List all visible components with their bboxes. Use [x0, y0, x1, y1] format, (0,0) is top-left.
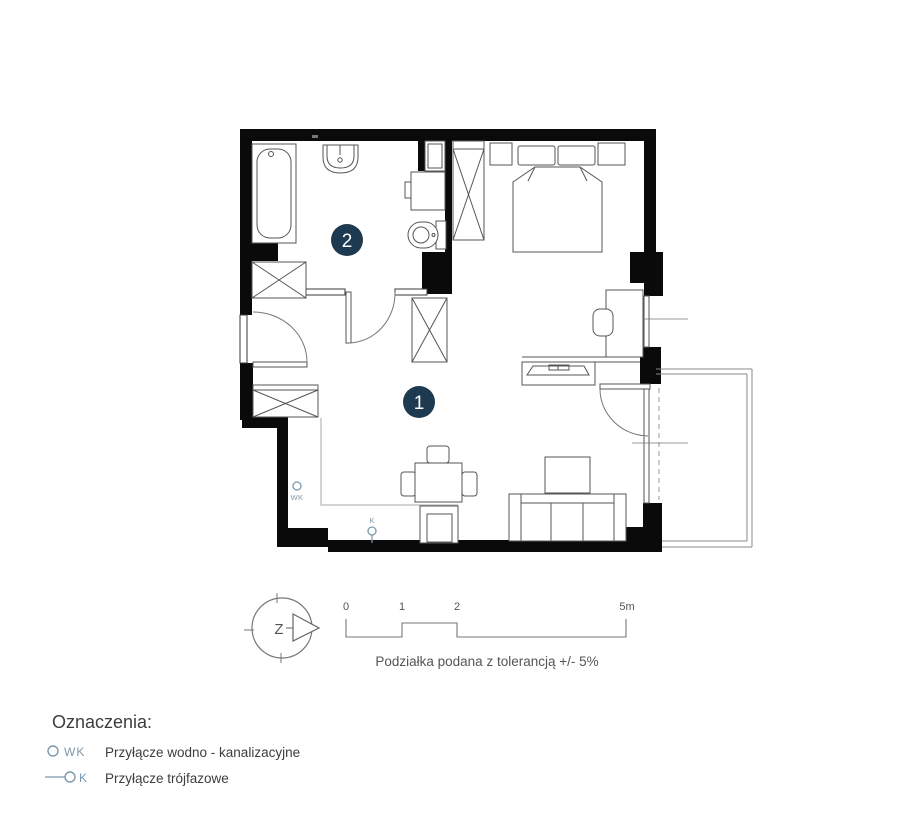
- tv-cabinet: [522, 357, 640, 385]
- legend: Oznaczenia: WK Przyłącze wodno - kanaliz…: [45, 712, 300, 786]
- wk-label: WK: [291, 493, 304, 502]
- wk-circle-icon: [293, 482, 301, 490]
- scale-tick-0: 0: [343, 601, 349, 613]
- bed-duvet: [513, 167, 602, 252]
- legend-k-symbol: K: [79, 771, 87, 785]
- marker-k: K: [368, 516, 376, 543]
- balcony-door-glazing: [644, 386, 649, 503]
- sink: [323, 145, 358, 173]
- coffee-table: [545, 457, 590, 493]
- compass-letter: Z: [274, 621, 283, 638]
- legend-k-circle-icon: [65, 772, 75, 782]
- window-glazing: [644, 296, 649, 347]
- bathtub: [252, 144, 296, 243]
- k-circle-icon: [368, 527, 376, 535]
- sofa: [509, 494, 626, 541]
- legend-wk-label: Przyłącze wodno - kanalizacyjne: [105, 745, 300, 760]
- toilet: [408, 221, 446, 249]
- desk-chair: [593, 309, 613, 336]
- bathroom-door: [346, 292, 395, 343]
- entry-door: [253, 312, 307, 367]
- chair-top: [427, 446, 449, 463]
- legend-k-label: Przyłącze trójfazowe: [105, 771, 229, 786]
- scale-tick-5m: 5m: [619, 601, 634, 613]
- dining-table: [415, 463, 462, 502]
- balcony: [656, 369, 752, 547]
- bed-group: [490, 143, 625, 252]
- compass-arrow-icon: [293, 614, 319, 641]
- scale-tick-2: 2: [454, 601, 460, 613]
- room-2-number: 2: [342, 231, 353, 252]
- high-chair: [420, 506, 458, 543]
- wardrobe-hall: [412, 298, 447, 362]
- floor-plan-page: WK K 2 1 Z 0 1 2 5m Podziałka podana z t…: [0, 0, 922, 833]
- scale-bar: 0 1 2 5m Podziałka podana z tolerancją +…: [343, 601, 635, 669]
- nightstand-right: [598, 143, 625, 165]
- marker-wk: WK: [291, 482, 304, 502]
- pillow-right: [558, 146, 595, 165]
- balcony-door: [600, 384, 650, 436]
- wardrobe-bedroom: [453, 141, 484, 240]
- desk: [593, 290, 643, 357]
- legend-heading: Oznaczenia:: [52, 712, 152, 732]
- room-badge-1: 1: [403, 386, 435, 418]
- legend-wk-circle-icon: [48, 746, 58, 756]
- k-label: K: [369, 516, 374, 525]
- dining-table-set: [401, 446, 477, 502]
- scale-bar-line: [346, 619, 626, 637]
- washing-machine: [405, 172, 445, 210]
- pillow-left: [518, 146, 555, 165]
- bathroom-partition-walls: [306, 289, 427, 295]
- legend-wk-symbol: WK: [64, 745, 85, 759]
- scale-caption: Podziałka podana z tolerancją +/- 5%: [375, 654, 598, 669]
- chair-right: [462, 472, 477, 496]
- entry-door-frame: [240, 315, 247, 363]
- cabinet-kitchen: [253, 385, 318, 417]
- nightstand-left: [490, 143, 512, 165]
- room-1-number: 1: [414, 393, 425, 414]
- room-badge-2: 2: [331, 224, 363, 256]
- chair-left: [401, 472, 416, 496]
- scale-tick-1: 1: [399, 601, 405, 613]
- closet-hall: [252, 262, 306, 298]
- shaft: [425, 141, 445, 171]
- floor-plan-svg: WK K 2 1 Z 0 1 2 5m Podziałka podana z t…: [0, 0, 922, 833]
- compass: Z: [244, 593, 319, 663]
